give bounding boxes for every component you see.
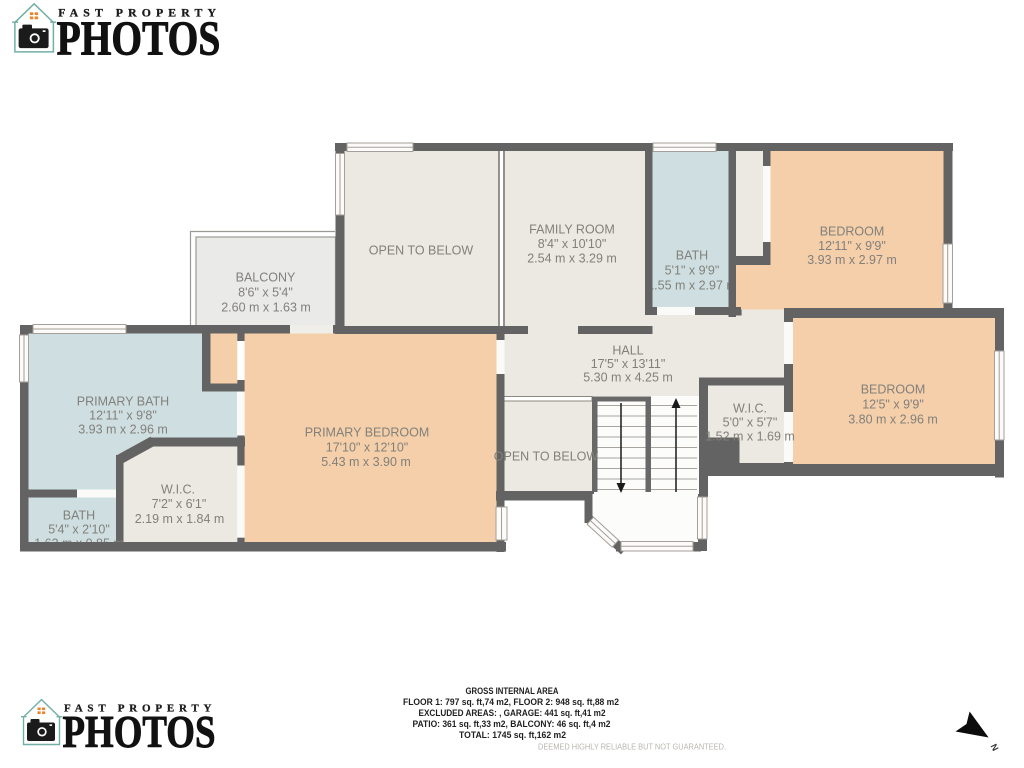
svg-text:3.93 m x 2.97 m: 3.93 m x 2.97 m [807, 253, 897, 267]
svg-text:12'5" x 9'9": 12'5" x 9'9" [862, 398, 924, 412]
svg-text:17'10" x 12'10": 17'10" x 12'10" [326, 441, 408, 455]
svg-text:5.43 m x 3.90 m: 5.43 m x 3.90 m [321, 455, 411, 469]
svg-text:BALCONY: BALCONY [236, 271, 296, 285]
svg-text:W.I.C.: W.I.C. [161, 483, 195, 497]
svg-text:PRIMARY BEDROOM: PRIMARY BEDROOM [305, 426, 430, 440]
svg-text:OPEN TO BELOW: OPEN TO BELOW [494, 450, 599, 464]
svg-text:1.52 m x 1.69 m: 1.52 m x 1.69 m [705, 430, 795, 444]
svg-text:1.55 m x 2.97 m: 1.55 m x 2.97 m [647, 279, 737, 293]
svg-text:2.60 m x 1.63 m: 2.60 m x 1.63 m [221, 301, 311, 315]
svg-text:W.I.C.: W.I.C. [733, 402, 767, 416]
svg-text:HALL: HALL [612, 344, 643, 358]
svg-text:5'0" x 5'7": 5'0" x 5'7" [723, 416, 778, 430]
svg-text:BEDROOM: BEDROOM [861, 383, 926, 397]
svg-text:TOTAL: 1745 sq. ft,162 m2: TOTAL: 1745 sq. ft,162 m2 [459, 730, 566, 740]
svg-text:EXCLUDED AREAS: , GARAGE: 441: EXCLUDED AREAS: , GARAGE: 441 sq. ft,41 … [419, 708, 606, 718]
svg-text:OPEN TO BELOW: OPEN TO BELOW [369, 244, 474, 258]
svg-text:FAMILY ROOM: FAMILY ROOM [529, 223, 615, 237]
svg-text:BATH: BATH [63, 509, 95, 523]
svg-text:2.19 m x 1.84 m: 2.19 m x 1.84 m [135, 512, 225, 526]
svg-text:12'11" x 9'9": 12'11" x 9'9" [818, 239, 886, 253]
svg-text:3.80 m x 2.96 m: 3.80 m x 2.96 m [848, 413, 938, 427]
svg-text:8'4" x 10'10": 8'4" x 10'10" [538, 237, 607, 251]
svg-text:FLOOR 1: 797 sq. ft,74 m2, FLO: FLOOR 1: 797 sq. ft,74 m2, FLOOR 2: 948 … [403, 697, 619, 707]
svg-text:PRIMARY BATH: PRIMARY BATH [77, 395, 169, 409]
svg-text:3.93 m x 2.96 m: 3.93 m x 2.96 m [78, 423, 168, 437]
svg-text:GROSS INTERNAL AREA: GROSS INTERNAL AREA [466, 686, 559, 696]
svg-text:PATIO: 361 sq. ft,33 m2, BALCO: PATIO: 361 sq. ft,33 m2, BALCONY: 46 sq.… [413, 719, 611, 729]
svg-text:7'2" x 6'1": 7'2" x 6'1" [152, 497, 207, 511]
svg-text:2.54 m x 3.29 m: 2.54 m x 3.29 m [527, 252, 617, 266]
svg-text:5.30 m x 4.25 m: 5.30 m x 4.25 m [583, 371, 673, 385]
svg-text:5'4" x 2'10": 5'4" x 2'10" [48, 523, 110, 537]
svg-text:5'1" x 9'9": 5'1" x 9'9" [665, 264, 720, 278]
svg-text:BATH: BATH [676, 249, 708, 263]
svg-text:8'6" x 5'4": 8'6" x 5'4" [238, 286, 293, 300]
svg-text:DEEMED HIGHLY RELIABLE BUT NOT: DEEMED HIGHLY RELIABLE BUT NOT GUARANTEE… [538, 742, 726, 752]
svg-text:BEDROOM: BEDROOM [820, 225, 885, 239]
svg-text:17'5" x 13'11": 17'5" x 13'11" [591, 357, 666, 371]
svg-text:12'11" x 9'8": 12'11" x 9'8" [89, 409, 157, 423]
